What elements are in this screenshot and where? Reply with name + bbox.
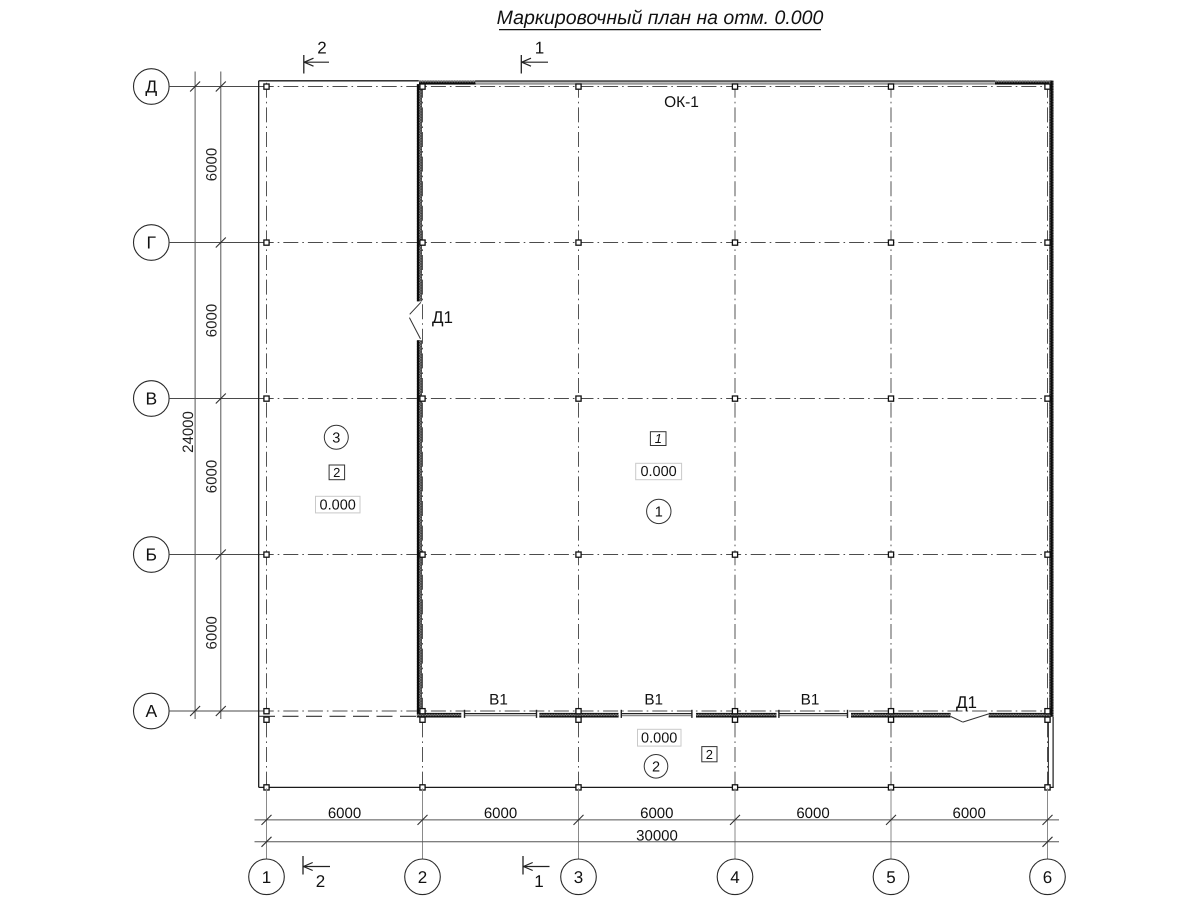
svg-text:2: 2	[418, 868, 427, 887]
svg-text:2: 2	[333, 465, 340, 480]
svg-text:6000: 6000	[203, 616, 220, 649]
svg-text:6000: 6000	[484, 805, 517, 822]
svg-text:А: А	[145, 701, 157, 721]
svg-text:2: 2	[706, 747, 713, 762]
svg-text:6000: 6000	[796, 805, 829, 822]
svg-text:Б: Б	[146, 545, 157, 565]
svg-text:3: 3	[332, 430, 340, 446]
svg-text:1: 1	[655, 431, 662, 446]
svg-text:6000: 6000	[203, 304, 220, 337]
svg-text:Д1: Д1	[432, 308, 453, 327]
svg-text:Д: Д	[145, 77, 157, 97]
svg-text:6000: 6000	[203, 148, 220, 181]
svg-text:6: 6	[1043, 868, 1052, 887]
svg-text:1: 1	[262, 868, 271, 887]
svg-text:Маркировочный план на отм. 0.0: Маркировочный план на отм. 0.000	[497, 7, 824, 29]
svg-text:1: 1	[655, 504, 663, 520]
svg-text:30000: 30000	[636, 827, 678, 844]
svg-text:6000: 6000	[640, 805, 673, 822]
svg-text:2: 2	[316, 872, 325, 891]
svg-text:В1: В1	[489, 692, 508, 709]
svg-text:1: 1	[534, 872, 543, 891]
svg-text:6000: 6000	[953, 805, 986, 822]
svg-text:Г: Г	[147, 233, 157, 253]
svg-text:В1: В1	[644, 692, 663, 709]
svg-text:ОК-1: ОК-1	[664, 94, 699, 111]
svg-text:5: 5	[886, 868, 895, 887]
svg-text:24000: 24000	[180, 411, 197, 453]
svg-text:Д1: Д1	[956, 693, 977, 712]
svg-text:4: 4	[730, 868, 739, 887]
svg-text:В: В	[145, 389, 157, 409]
svg-text:0.000: 0.000	[641, 731, 677, 747]
svg-text:1: 1	[535, 39, 544, 58]
svg-text:В1: В1	[801, 692, 820, 709]
svg-text:2: 2	[317, 39, 326, 58]
svg-text:0.000: 0.000	[640, 464, 676, 480]
svg-text:2: 2	[652, 759, 660, 775]
svg-text:6000: 6000	[203, 460, 220, 493]
svg-text:6000: 6000	[328, 805, 361, 822]
svg-text:0.000: 0.000	[320, 497, 356, 513]
svg-text:3: 3	[574, 868, 583, 887]
